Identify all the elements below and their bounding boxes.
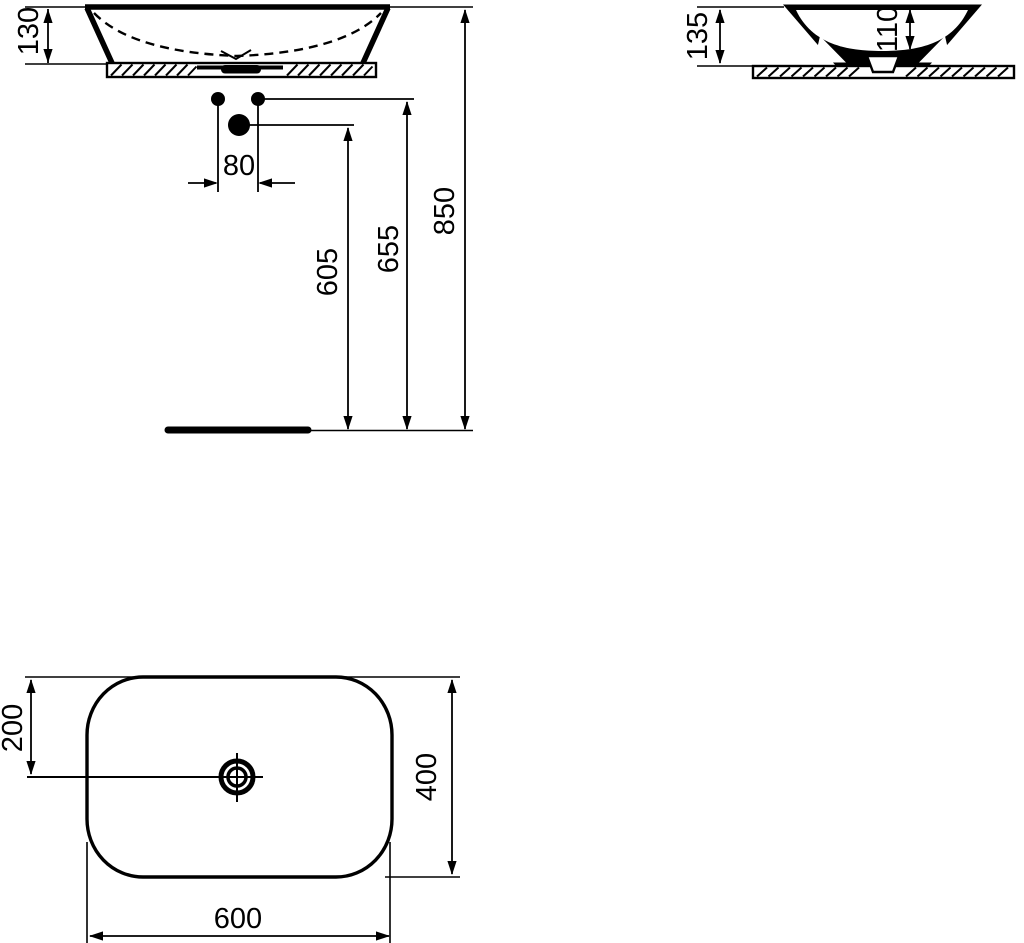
dim-label-135: 135 — [682, 12, 714, 60]
plan-view: 200 400 600 — [0, 677, 460, 943]
dimension-basin-height: 130 — [13, 7, 53, 63]
dimension-rim-height: 850 — [429, 9, 470, 430]
dim-label-605: 605 — [312, 248, 344, 296]
drain-notch-contour — [221, 50, 251, 59]
basin-wall-left — [87, 8, 112, 63]
side-view: 135 110 — [682, 5, 1014, 79]
dimension-total-height: 135 — [682, 9, 725, 64]
drain-side — [867, 56, 899, 72]
technical-drawing-canvas: 130 80 605 655 850 — [0, 0, 1024, 943]
dimension-tap-hole-height: 655 — [373, 101, 412, 430]
dim-label-850: 850 — [429, 187, 461, 235]
dimension-drain-offset: 200 — [0, 679, 36, 775]
dim-label-600: 600 — [214, 903, 262, 935]
inner-bowl-dashed-contour — [94, 13, 381, 56]
dimension-basin-width: 600 — [89, 903, 390, 941]
dim-label-80: 80 — [223, 150, 255, 182]
drain-front — [221, 65, 261, 74]
dimension-basin-depth: 400 — [411, 679, 457, 875]
dimension-tap-hole-spacing: 80 — [188, 150, 295, 188]
dim-label-200: 200 — [0, 704, 29, 752]
dim-label-110: 110 — [872, 6, 904, 52]
dim-label-400: 400 — [411, 753, 443, 801]
dim-label-130: 130 — [13, 7, 45, 55]
basin-wall-right — [363, 8, 388, 63]
dim-label-655: 655 — [373, 225, 405, 273]
front-view: 130 80 605 655 850 — [13, 7, 473, 431]
dimension-outlet-height: 605 — [312, 127, 353, 430]
